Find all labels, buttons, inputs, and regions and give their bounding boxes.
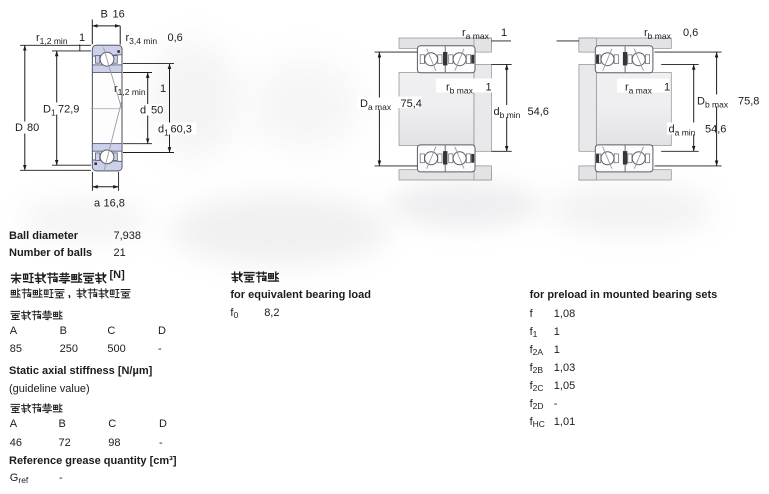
svg-text:75,4: 75,4 bbox=[401, 98, 422, 110]
svg-text:1: 1 bbox=[79, 32, 85, 44]
svg-text:60,3: 60,3 bbox=[171, 124, 192, 136]
svg-text:0,6: 0,6 bbox=[168, 32, 183, 44]
svg-text:1: 1 bbox=[160, 83, 166, 95]
svg-text:16: 16 bbox=[113, 9, 125, 21]
svg-text:1: 1 bbox=[486, 82, 492, 94]
svg-text:r3,4 min: r3,4 min bbox=[126, 32, 158, 46]
svg-text:72,9: 72,9 bbox=[58, 104, 79, 116]
svg-text:16,8: 16,8 bbox=[104, 197, 125, 209]
svg-text:54,6: 54,6 bbox=[528, 106, 549, 118]
svg-text:80: 80 bbox=[27, 122, 39, 134]
svg-text:ra max: ra max bbox=[462, 27, 490, 41]
svg-text:54,6: 54,6 bbox=[705, 124, 726, 136]
svg-text:1: 1 bbox=[501, 27, 507, 39]
svg-text:a: a bbox=[94, 197, 101, 209]
svg-text:0,6: 0,6 bbox=[683, 27, 698, 39]
svg-text:B: B bbox=[101, 9, 108, 21]
svg-text:75,8: 75,8 bbox=[738, 96, 759, 108]
svg-text:r1,2 min: r1,2 min bbox=[36, 32, 68, 46]
svg-text:50: 50 bbox=[151, 105, 163, 117]
svg-text:d: d bbox=[140, 105, 146, 117]
svg-text:1: 1 bbox=[664, 82, 670, 94]
svg-text:D: D bbox=[15, 122, 23, 134]
svg-text:rb max: rb max bbox=[644, 27, 672, 41]
